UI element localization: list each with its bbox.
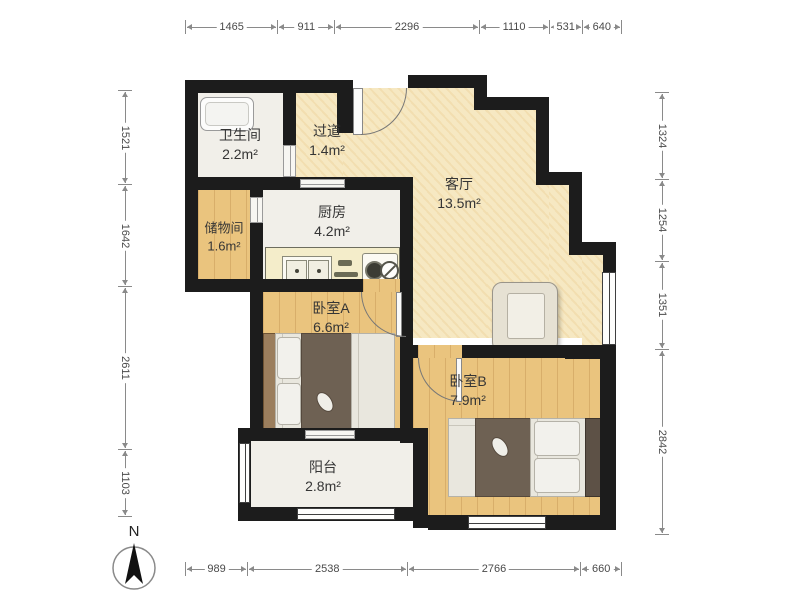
floor-plan: 卫生间 2.2m² 过道 1.4m² 储物间 1.6m² 厨房 4.2m² 客厅… — [185, 75, 622, 530]
balcony-window-bottom — [297, 508, 395, 520]
floorplan-page: { "title": "两室一厅户型图", "compass": { "labe… — [0, 0, 800, 600]
room-area: 2.2m² — [219, 145, 261, 164]
bed-a-pillow — [277, 383, 301, 425]
room-label-living: 客厅 13.5m² — [437, 175, 481, 213]
dim-label: 2538 — [312, 563, 342, 575]
room-label-bathroom: 卫生间 2.2m² — [219, 126, 261, 164]
room-label-bedroom-b: 卧室B 7.9m² — [449, 372, 486, 410]
room-area: 4.2m² — [314, 222, 350, 241]
dim-segment: 2296 — [334, 20, 478, 34]
wall-segment — [413, 428, 428, 528]
room-label-bedroom-a: 卧室A 6.6m² — [312, 299, 349, 337]
dim-segment: 640 — [582, 20, 622, 34]
room-label-hallway: 过道 1.4m² — [309, 122, 345, 160]
dim-segment: 1465 — [185, 20, 277, 34]
bed-a-pillow — [277, 337, 301, 379]
room-name: 卧室B — [449, 372, 486, 391]
dim-label: 1465 — [216, 21, 246, 33]
compass: N — [103, 524, 165, 600]
dim-segment: 989 — [185, 562, 247, 576]
dim-segment: 1642 — [118, 184, 132, 286]
balcony-sliding-door — [305, 430, 355, 439]
wall-segment — [250, 279, 263, 430]
stove-burner — [380, 261, 399, 280]
room-name: 卧室A — [312, 299, 349, 318]
ruler-right: 1324 1254 1351 2842 — [655, 92, 669, 535]
room-name: 过道 — [309, 122, 345, 141]
dim-label: 911 — [295, 21, 319, 33]
room-name: 阳台 — [305, 458, 341, 477]
wall-segment — [185, 177, 296, 190]
dim-label: 1642 — [119, 221, 131, 251]
bedroom-b-window — [468, 516, 546, 529]
bed-b-pillow — [534, 458, 580, 493]
bed-a-blanket — [301, 333, 353, 430]
dim-label: 1351 — [656, 290, 668, 320]
room-name: 卫生间 — [219, 126, 261, 145]
room-name: 储物间 — [204, 219, 243, 237]
bed-b — [448, 418, 601, 495]
dim-label: 1521 — [119, 122, 131, 152]
dim-segment: 531 — [549, 20, 582, 34]
door-opening — [418, 345, 462, 358]
room-area: 6.6m² — [312, 318, 349, 337]
dim-label: 1103 — [119, 468, 131, 498]
living-room-window — [602, 272, 616, 345]
sink-basin — [308, 260, 329, 281]
dim-label: 2842 — [656, 427, 668, 457]
dim-label: 1324 — [656, 121, 668, 151]
bed-a-footsheet — [351, 333, 395, 430]
dim-segment: 1103 — [118, 449, 132, 517]
counter-item — [334, 272, 358, 277]
counter-item — [338, 260, 352, 266]
dim-segment: 1521 — [118, 90, 132, 184]
dim-label: 640 — [590, 21, 614, 33]
dim-label: 660 — [589, 563, 613, 575]
dim-segment: 2538 — [247, 562, 407, 576]
dim-label: 2611 — [119, 353, 131, 383]
room-area: 13.5m² — [437, 194, 481, 213]
bed-b-blanket — [475, 418, 532, 497]
dim-segment: 660 — [580, 562, 622, 576]
dim-segment: 1254 — [655, 179, 669, 261]
compass-rose-icon — [103, 540, 165, 596]
dim-segment: 1110 — [479, 20, 549, 34]
room-label-storage: 储物间 1.6m² — [204, 219, 243, 254]
wall-segment — [185, 279, 263, 292]
storage-door — [250, 197, 263, 223]
bed-b-pillow — [534, 421, 580, 456]
dim-segment: 2842 — [655, 349, 669, 535]
wall-segment — [263, 279, 363, 292]
wall-segment — [600, 345, 616, 530]
room-name: 厨房 — [314, 203, 350, 222]
dim-label: 2766 — [479, 563, 509, 575]
room-area: 1.4m² — [309, 141, 345, 160]
room-label-kitchen: 厨房 4.2m² — [314, 203, 350, 241]
dim-segment: 911 — [277, 20, 334, 34]
bed-a — [263, 333, 393, 428]
wall-segment — [462, 345, 565, 358]
room-name: 客厅 — [437, 175, 481, 194]
room-area: 7.9m² — [449, 391, 486, 410]
dim-segment: 1351 — [655, 261, 669, 349]
bathroom-door — [283, 145, 296, 177]
door-opening — [363, 279, 400, 292]
dim-label: 989 — [204, 563, 228, 575]
ruler-top: 1465 911 2296 1110 531 640 — [185, 20, 622, 34]
ruler-bottom: 989 2538 2766 660 — [185, 562, 622, 576]
compass-north-label: N — [103, 524, 165, 540]
room-area: 2.8m² — [305, 477, 341, 496]
kitchen-sliding-door — [300, 179, 345, 188]
dim-label: 1110 — [500, 21, 529, 33]
armchair — [492, 282, 558, 352]
dim-segment: 2766 — [407, 562, 581, 576]
room-label-balcony: 阳台 2.8m² — [305, 458, 341, 496]
sink-basin — [286, 260, 307, 281]
dim-label: 531 — [553, 21, 577, 33]
room-area: 1.6m² — [204, 237, 243, 255]
dim-segment: 2611 — [118, 286, 132, 448]
dim-segment: 1324 — [655, 92, 669, 179]
dim-label: 2296 — [392, 21, 422, 33]
wall-segment — [185, 80, 353, 93]
wall-segment — [603, 242, 616, 274]
bed-b-footsheet — [448, 418, 477, 497]
ruler-left: 1521 1642 2611 1103 — [118, 90, 132, 517]
balcony-window-left — [239, 443, 250, 503]
dim-label: 1254 — [656, 205, 668, 235]
